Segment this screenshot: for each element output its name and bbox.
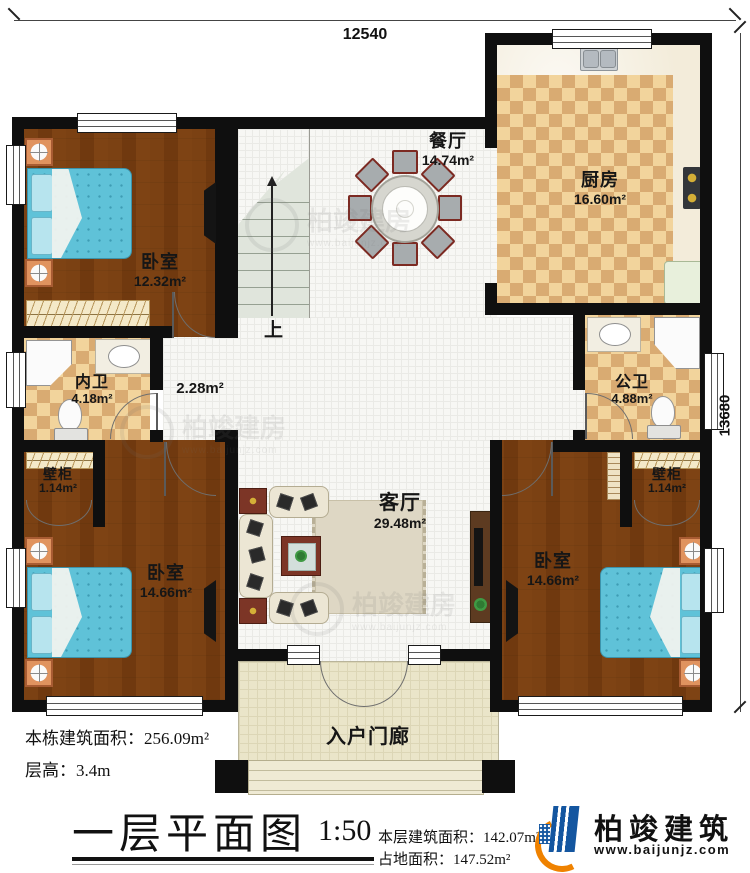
room-label-closet-right: 壁柜 1.14m² [627,466,707,496]
room-label-dining: 餐厅 14.74m² [398,131,498,168]
side-table [239,598,267,624]
double-bed [27,168,132,259]
room-name: 壁柜 [627,466,707,482]
room-area: 1.14m² [627,482,707,496]
land-area-label: 占地面积： [378,852,453,868]
porch-column [215,760,248,793]
window [77,113,177,133]
coffee-table [281,536,321,576]
room-label-living: 客厅 29.48m² [350,492,450,531]
nightstand [25,138,53,166]
land-area-line: 占地面积：147.52m² [378,848,510,869]
room-area: 14.66m² [503,572,603,588]
room-label-porch: 入户门廊 [298,726,438,749]
logo-block [539,824,550,844]
window [46,696,203,716]
window [704,548,724,613]
room-name: 内卫 [47,374,137,392]
window [6,352,26,408]
room-label-bath-inner: 内卫 4.18m² [47,374,137,407]
room-area: 4.88m² [587,392,677,407]
brand-website: www.baijunjz.com [594,842,730,857]
wall [215,117,238,338]
dining-table-center [396,200,414,218]
title-rule [72,857,374,861]
room-area: 2.28m² [168,380,232,397]
fridge-icon [664,261,704,305]
dimension-tick [729,8,742,21]
kitchen-sink-icon [580,47,618,71]
window [6,548,26,608]
dimension-top-value: 12540 [330,26,400,44]
floor-area-label: 本层建筑面积： [378,830,483,846]
sink-bowl [600,50,616,68]
wall [225,442,238,712]
window [552,29,652,49]
nightstand [25,259,53,287]
pillow [31,174,53,212]
vanity-counter [587,317,641,352]
pillow [31,616,53,654]
wall [573,303,585,390]
dimension-right-value: 13680 [717,386,734,446]
wall [150,430,163,442]
room-area: 12.32m² [110,273,210,289]
porch-steps [248,760,484,795]
logo-building [549,806,580,852]
room-name: 卧室 [110,252,210,273]
room-area: 14.66m² [116,584,216,600]
floor-height-value: 3.4m [76,761,110,780]
building-area-label: 本栋建筑面积： [25,729,144,748]
room-label-bedroom-tl: 卧室 12.32m² [110,252,210,289]
hallway-area-label: 2.28m² [168,380,232,397]
room-label-kitchen: 厨房 16.60m² [550,170,650,207]
building-area-value: 256.09m² [144,729,209,748]
floor-area-line: 本层建筑面积：142.07m² [378,826,540,847]
nightstand [25,659,53,687]
wall [238,649,290,661]
sofa-cushion [246,519,264,537]
plan-title: 一层平面图 [72,800,307,861]
window [518,696,683,716]
sofa-cushion [276,599,294,617]
brand-logo-icon [535,804,589,862]
room-area: 4.18m² [47,392,137,407]
sink-icon [108,345,140,368]
plant-icon [295,550,307,562]
wall [215,430,238,442]
sofa-cushion [300,493,318,511]
sink-icon [599,323,631,346]
title-rule-thin [72,864,374,865]
sink-bowl [583,50,599,68]
dimension-tick [8,8,21,21]
room-name: 卧室 [503,551,603,572]
plan-scale: 1:50 [318,814,371,848]
side-table [239,488,267,514]
floor-plan-canvas: 上 [0,0,750,873]
wall [12,440,105,452]
wall [485,303,712,315]
dimension-line-right [740,33,741,712]
room-area: 14.74m² [398,152,498,168]
dining-chair [438,195,462,221]
double-bed [600,567,705,658]
bed-sheet [52,568,82,657]
dining-chair [392,242,418,266]
room-label-bath-public: 公卫 4.88m² [587,374,677,407]
floor-height-label: 层高： [25,761,76,780]
tv-icon [474,528,483,586]
wardrobe-rail [26,300,150,328]
wall [12,117,24,712]
wall [438,649,497,661]
room-name: 卧室 [116,563,216,584]
tv-icon [506,580,518,642]
pillow [31,217,53,255]
tv-icon [204,182,216,244]
window [6,145,26,205]
plant-icon [474,598,487,611]
room-name: 壁柜 [18,466,98,482]
stove-icon [683,167,701,209]
nightstand [25,537,53,565]
room-area: 16.60m² [550,191,650,207]
sofa-top [269,486,329,518]
sofa-cushion [248,546,265,563]
window [408,645,441,665]
pillow [31,573,53,611]
building-area-line: 本栋建筑面积：256.09m² [25,724,209,749]
sofa-cushion [276,493,294,511]
dimension-tick [734,21,747,34]
room-name: 厨房 [550,170,650,191]
sofa-cushion [300,599,318,617]
room-area: 29.48m² [350,515,450,531]
bed-sheet [650,568,680,657]
wall [490,440,502,712]
dining-chair [348,195,372,221]
tv-cabinet [470,511,492,623]
sofa-main [239,514,273,598]
sofa-bottom [269,592,329,624]
stairs-up-text: 上 [252,320,296,342]
sofa-cushion [246,573,264,591]
wall [573,430,585,452]
porch-column [482,760,515,793]
room-label-bedroom-bl: 卧室 14.66m² [116,563,216,600]
dimension-line-top [14,20,736,21]
stairs-direction-line [271,186,273,316]
vanity-counter [95,339,151,374]
toilet-tank [647,425,681,439]
stairs-direction-arrow [267,176,277,186]
window [287,645,320,665]
wall [150,338,163,390]
stairs-up-label: 上 [252,320,296,342]
room-name: 公卫 [587,374,677,392]
floor-height-line: 层高：3.4m [25,756,110,781]
room-name: 餐厅 [398,131,498,152]
floor-area-value: 142.07m² [483,830,540,846]
room-name: 入户门廊 [298,726,438,749]
wall [12,326,172,338]
room-label-bedroom-br: 卧室 14.66m² [503,551,603,588]
wall [238,117,497,129]
bed-sheet [52,169,82,258]
room-label-closet-left: 壁柜 1.14m² [18,466,98,496]
room-name: 客厅 [350,492,450,515]
land-area-value: 147.52m² [453,852,510,868]
room-area: 1.14m² [18,482,98,496]
